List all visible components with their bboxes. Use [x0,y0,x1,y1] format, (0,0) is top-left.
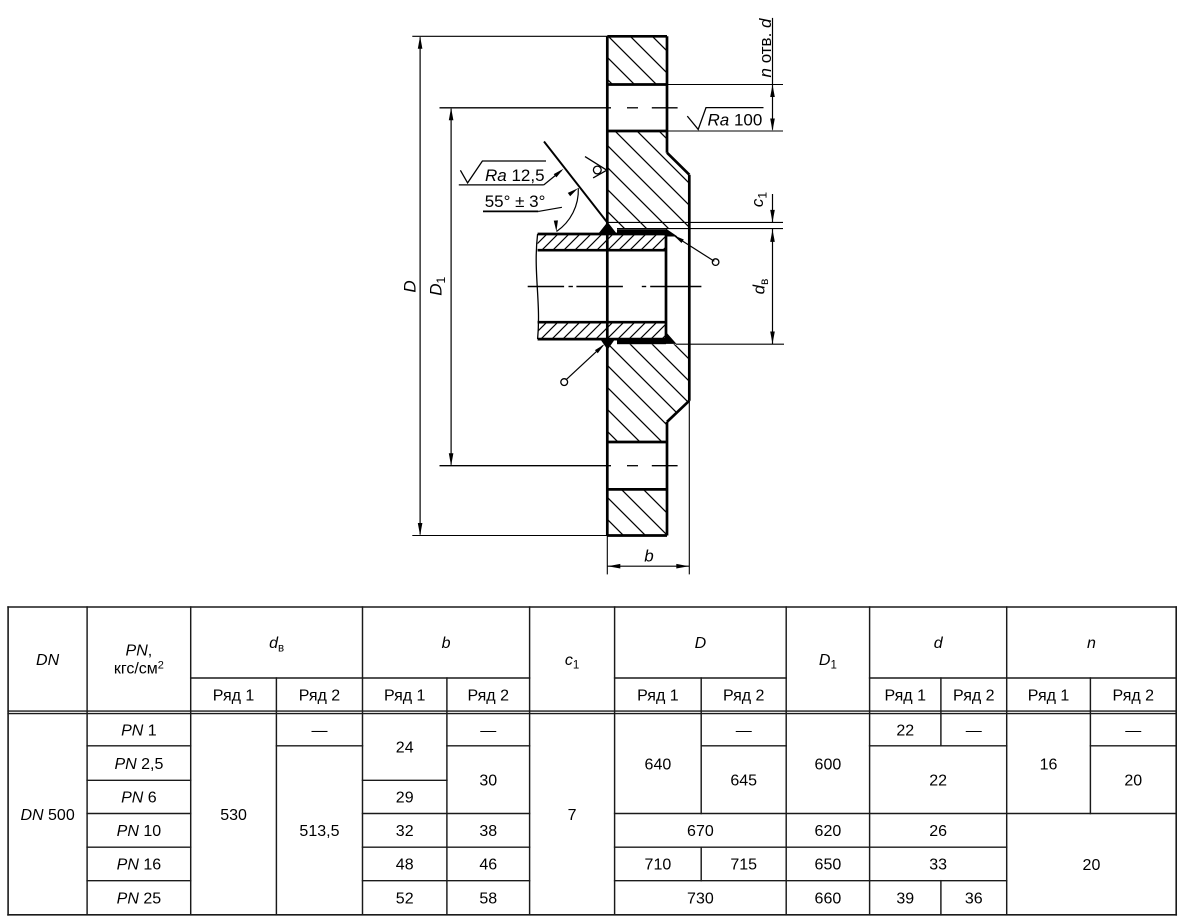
svg-text:PN 1: PN 1 [121,722,157,739]
svg-text:38: 38 [479,823,497,840]
svg-text:24: 24 [396,740,414,757]
svg-text:n отв. d: n отв. d [756,18,775,78]
svg-text:—: — [480,722,496,739]
svg-text:PN 2,5: PN 2,5 [114,756,163,773]
svg-text:b: b [644,547,653,566]
svg-text:Ряд 1: Ряд 1 [885,687,927,704]
svg-text:D: D [401,280,420,292]
svg-text:650: 650 [815,857,842,874]
svg-text:D: D [695,635,707,652]
svg-text:n: n [1087,635,1096,652]
svg-text:PN,: PN, [126,643,153,660]
svg-text:36: 36 [965,890,983,907]
svg-text:кгс/см2: кгс/см2 [114,660,164,678]
svg-text:Ряд 2: Ряд 2 [299,687,341,704]
svg-text:d: d [934,635,944,652]
svg-text:Ряд 2: Ряд 2 [723,687,765,704]
svg-text:Ряд 2: Ряд 2 [953,687,995,704]
svg-text:16: 16 [1040,756,1058,773]
svg-text:710: 710 [645,857,672,874]
svg-text:620: 620 [815,823,842,840]
svg-text:29: 29 [396,790,414,807]
svg-text:52: 52 [396,890,414,907]
svg-text:715: 715 [730,857,757,874]
svg-text:PN 25: PN 25 [117,890,162,907]
svg-text:513,5: 513,5 [299,823,339,840]
svg-text:660: 660 [815,890,842,907]
svg-text:Ряд 1: Ряд 1 [637,687,679,704]
svg-text:Ra 12,5: Ra 12,5 [485,166,545,185]
svg-text:—: — [1125,722,1141,739]
svg-text:530: 530 [220,807,247,824]
svg-text:48: 48 [396,857,414,874]
svg-text:20: 20 [1083,857,1101,874]
svg-text:—: — [311,722,327,739]
svg-text:22: 22 [896,722,914,739]
svg-text:58: 58 [479,890,497,907]
svg-text:640: 640 [645,756,672,773]
svg-text:46: 46 [479,857,497,874]
svg-text:Ряд 1: Ряд 1 [384,687,426,704]
svg-text:32: 32 [396,823,414,840]
svg-text:Ra 100: Ra 100 [708,111,763,130]
svg-text:22: 22 [929,772,947,789]
svg-text:DN: DN [36,652,60,669]
svg-text:—: — [736,722,752,739]
svg-text:PN 10: PN 10 [117,823,162,840]
svg-text:—: — [966,722,982,739]
svg-text:Ряд 1: Ряд 1 [213,687,255,704]
svg-text:b: b [442,635,451,652]
svg-text:39: 39 [896,890,914,907]
svg-text:PN 6: PN 6 [121,790,157,807]
svg-text:600: 600 [815,756,842,773]
svg-text:30: 30 [479,772,497,789]
svg-text:DN 500: DN 500 [20,807,74,824]
svg-text:55° ± 3°: 55° ± 3° [485,192,546,211]
svg-text:26: 26 [929,823,947,840]
svg-text:7: 7 [568,807,577,824]
svg-text:33: 33 [929,857,947,874]
svg-text:PN 16: PN 16 [117,857,162,874]
svg-text:670: 670 [687,823,714,840]
svg-text:Ряд 1: Ряд 1 [1028,687,1070,704]
svg-text:Ряд 2: Ряд 2 [1113,687,1155,704]
svg-text:645: 645 [730,772,757,789]
svg-text:730: 730 [687,890,714,907]
svg-text:Ряд 2: Ряд 2 [468,687,510,704]
svg-text:20: 20 [1124,772,1142,789]
